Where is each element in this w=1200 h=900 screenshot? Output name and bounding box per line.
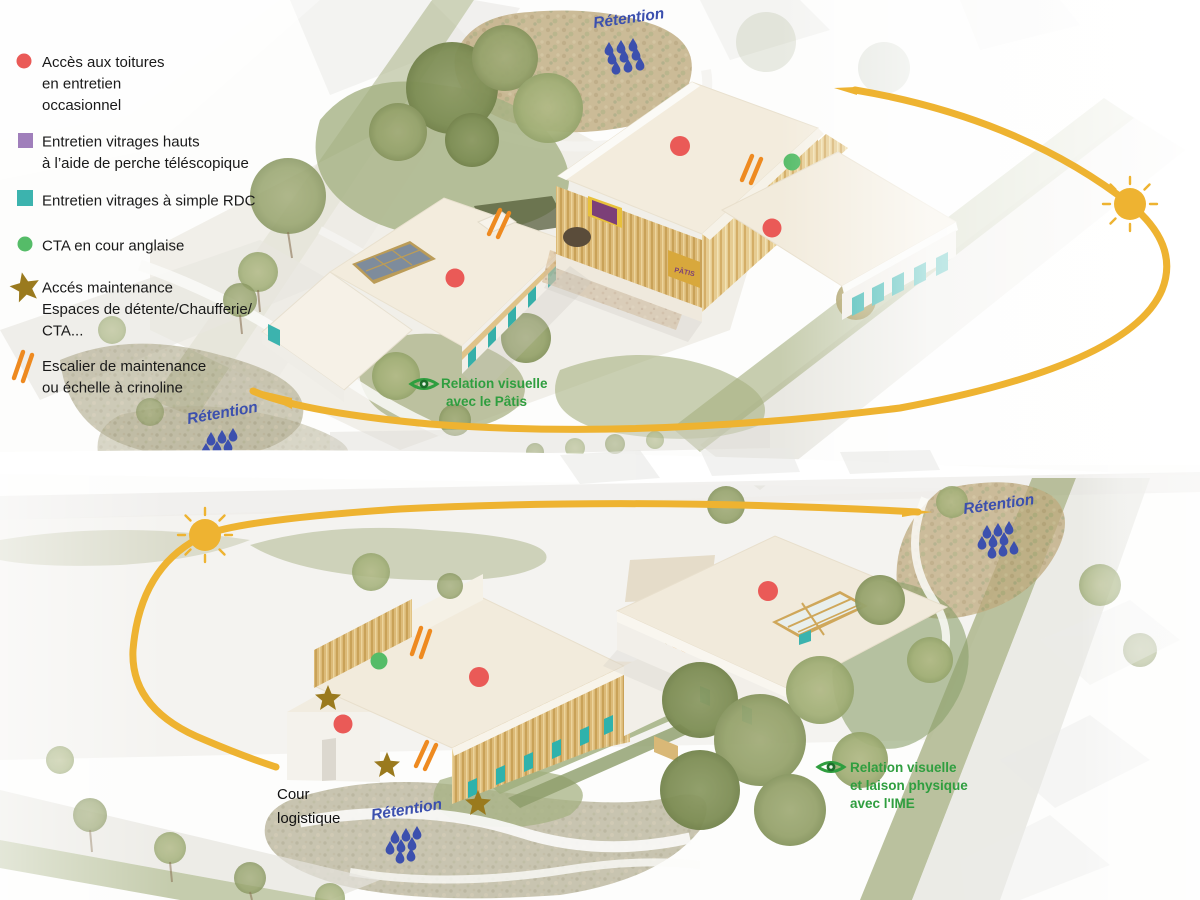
svg-text:et laison physique: et laison physique — [850, 778, 968, 793]
svg-text:Entretien vitrages hauts: Entretien vitrages hauts — [42, 134, 200, 151]
svg-text:occasionnel: occasionnel — [42, 97, 121, 114]
svg-text:ou échelle à crinoline: ou échelle à crinoline — [42, 380, 183, 397]
svg-text:Accés maintenance: Accés maintenance — [42, 280, 173, 297]
svg-text:Cour: Cour — [277, 786, 310, 803]
svg-text:Accès aux toitures: Accès aux toitures — [42, 54, 165, 71]
svg-text:avec le Pâtis: avec le Pâtis — [446, 394, 527, 409]
svg-text:Escalier de maintenance: Escalier de maintenance — [42, 358, 206, 375]
svg-text:Entretien vitrages à simple RD: Entretien vitrages à simple RDC — [42, 193, 256, 210]
svg-text:avec l'IME: avec l'IME — [850, 796, 915, 811]
svg-text:CTA...: CTA... — [42, 323, 83, 340]
svg-text:à l’aide de perche téléscopiqu: à l’aide de perche téléscopique — [42, 155, 249, 172]
svg-text:Espaces de détente/Chaufferie/: Espaces de détente/Chaufferie/ — [42, 301, 253, 318]
svg-text:en entretien: en entretien — [42, 76, 121, 93]
svg-text:logistique: logistique — [277, 810, 340, 827]
svg-text:Relation visuelle: Relation visuelle — [850, 760, 957, 775]
svg-text:Relation visuelle: Relation visuelle — [441, 376, 548, 391]
svg-text:CTA en cour anglaise: CTA en cour anglaise — [42, 238, 184, 255]
